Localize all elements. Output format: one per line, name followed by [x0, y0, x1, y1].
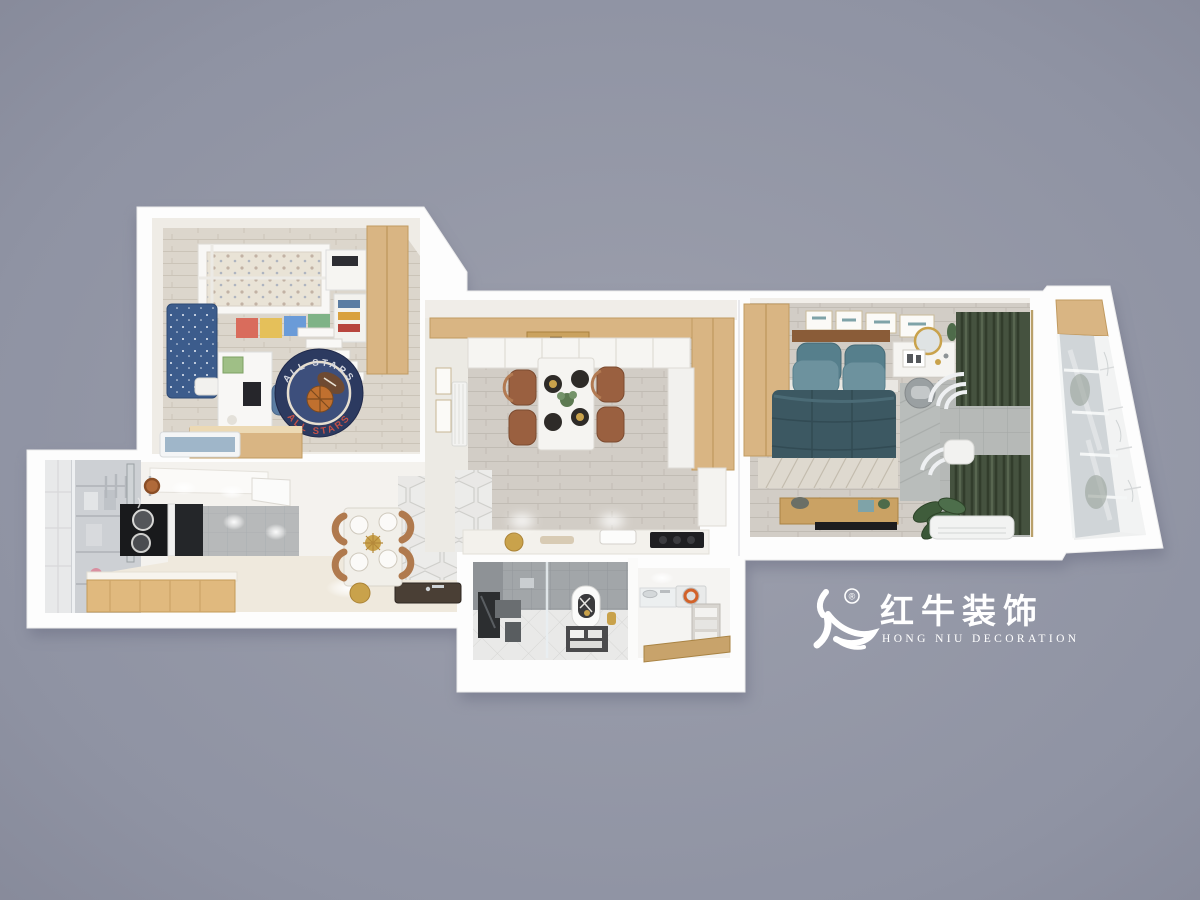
- kitchen-upper-shelf: [150, 468, 268, 494]
- kitchen-sink: [395, 583, 461, 603]
- kitchen-island: [87, 580, 235, 612]
- monitor: [243, 382, 261, 406]
- brass-bin: [607, 612, 616, 625]
- dining-table: [538, 358, 594, 450]
- basketball-rug: ALL STARS ALL STARS: [275, 349, 363, 437]
- headboard: [792, 330, 890, 342]
- breakfast-table: [344, 508, 402, 586]
- room-kitchen-section: [45, 460, 461, 613]
- partition-wall: [628, 558, 638, 660]
- bench-decor: [791, 497, 809, 509]
- pillow: [195, 378, 219, 395]
- room-dining: [425, 300, 739, 556]
- books: [332, 256, 358, 266]
- kids-blue-cabinet: [160, 432, 240, 457]
- oven-column: [120, 498, 168, 556]
- kids-star-bedding: [167, 304, 219, 398]
- ac-unit: [930, 516, 1014, 539]
- kids-desk: [218, 352, 272, 438]
- kids-loft-bed: [198, 244, 330, 314]
- towel-shelf: [566, 626, 608, 652]
- dining-bottom-counter: [463, 530, 709, 554]
- room-kids-bedroom: ALL STARS ALL STARS: [152, 218, 420, 458]
- laundry-counter: [640, 588, 676, 607]
- kids-wardrobe: [367, 226, 408, 374]
- tv-panel: [815, 522, 897, 530]
- gold-plate: [505, 533, 523, 551]
- registered-r: ®: [849, 592, 856, 602]
- room-master-bedroom: [744, 298, 1032, 543]
- floorplan-render: ALL STARS ALL STARS: [0, 0, 1200, 900]
- brand-name-en: HONG NIU DECORATION: [882, 633, 1079, 645]
- glass-door-frame: [72, 460, 75, 613]
- floorplan-canvas: ALL STARS ALL STARS: [0, 0, 1200, 900]
- pillow-front-left: [793, 360, 839, 394]
- dining-top-wall-face: [425, 300, 737, 320]
- plant-silhouette: [1070, 374, 1090, 406]
- dark-cabinet: [175, 504, 203, 556]
- room-bathroom-section: [473, 558, 730, 662]
- gold-tray: [350, 583, 370, 603]
- vanity: [495, 600, 521, 618]
- small-appliance: [600, 530, 636, 544]
- brand-name-cn: 红牛装饰: [880, 593, 1044, 631]
- balcony-cabinet: [1056, 300, 1108, 336]
- stool: [505, 622, 521, 642]
- bathroom: [473, 562, 628, 660]
- toilet: [572, 586, 600, 628]
- laundry-room: [638, 568, 730, 662]
